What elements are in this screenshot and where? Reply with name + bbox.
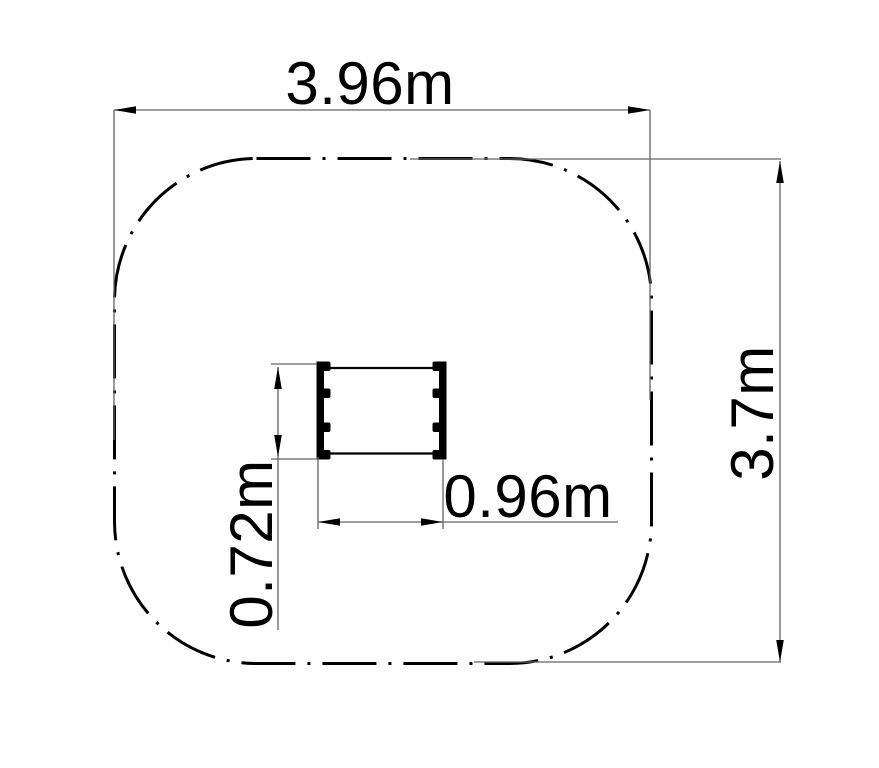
item-width-label: 0.96m: [443, 467, 612, 527]
equipment-plan: [317, 362, 447, 460]
item-height-label: 0.72m: [222, 459, 282, 628]
left-post-lug: [322, 423, 331, 433]
arrow-down-icon: [274, 435, 282, 457]
left-post-lug: [322, 389, 331, 399]
left-post-lug: [322, 450, 331, 460]
safety-zone-boundary: [115, 159, 652, 664]
arrow-down-icon: [776, 640, 784, 662]
arrow-left-icon: [114, 106, 136, 114]
equipment-right-post: [439, 362, 447, 460]
left-post-lug: [322, 362, 331, 372]
right-post-lug: [433, 362, 442, 372]
equipment-left-post: [317, 362, 325, 460]
zone-width-dimension: [114, 106, 650, 440]
right-post-lug: [433, 423, 442, 433]
arrow-up-icon: [274, 367, 282, 389]
zone-width-label: 3.96m: [285, 54, 454, 114]
arrow-right-icon: [421, 518, 443, 526]
arrow-right-icon: [628, 106, 650, 114]
technical-drawing: 3.96m 3.7m 0.96m 0.72m: [0, 0, 879, 768]
right-post-lug: [433, 450, 442, 460]
zone-height-label: 3.7m: [723, 345, 783, 480]
arrow-left-icon: [318, 518, 340, 526]
right-post-lug: [433, 389, 442, 399]
arrow-up-icon: [776, 161, 784, 183]
